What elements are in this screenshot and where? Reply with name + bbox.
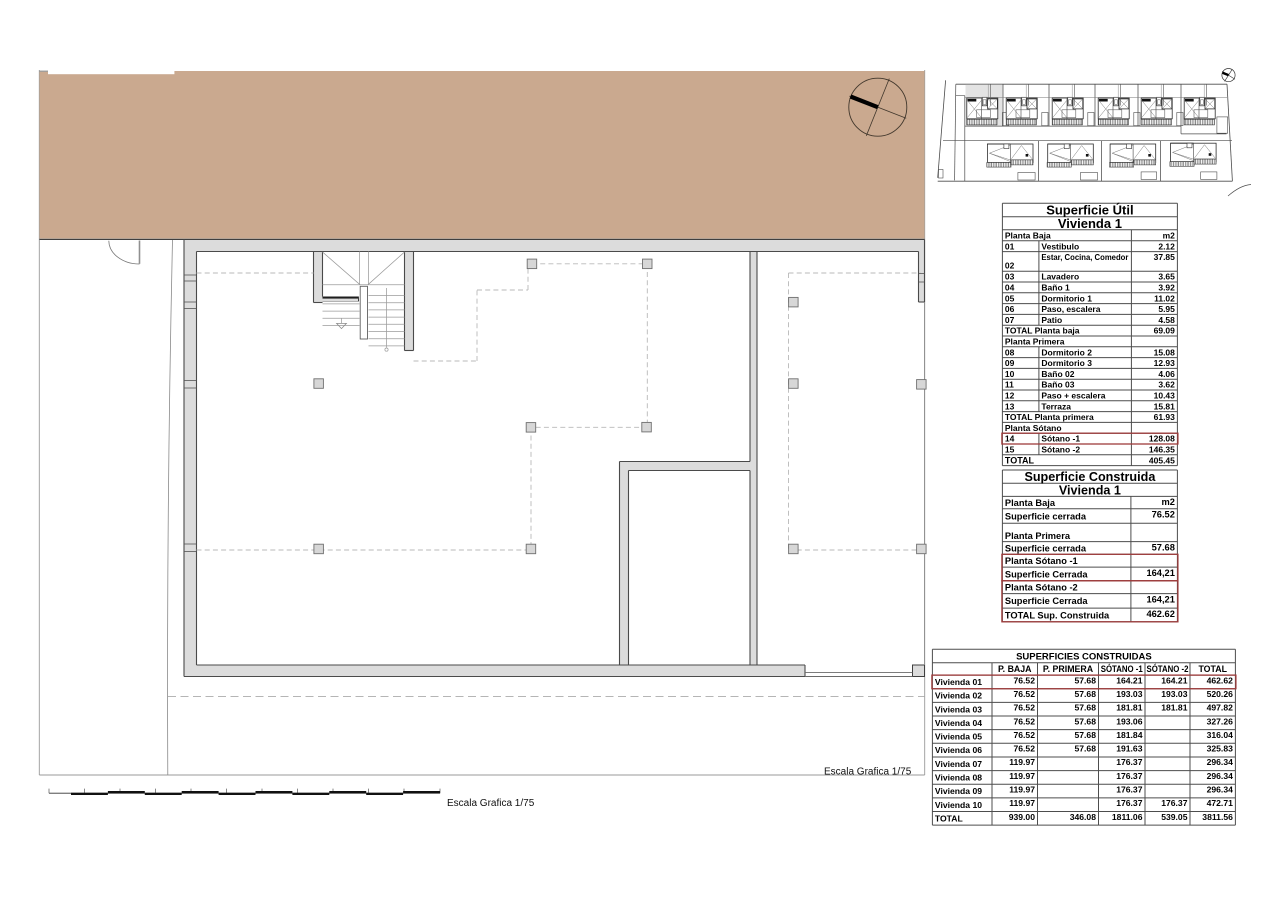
svg-text:13: 13 — [1005, 401, 1015, 411]
svg-text:15.08: 15.08 — [1154, 347, 1176, 357]
svg-text:193.03: 193.03 — [1116, 689, 1143, 699]
svg-text:Superficie cerrada: Superficie cerrada — [1005, 511, 1087, 521]
svg-text:Vivienda 1: Vivienda 1 — [1058, 216, 1122, 231]
svg-text:1811.06: 1811.06 — [1112, 812, 1143, 822]
svg-text:296.34: 296.34 — [1207, 757, 1234, 767]
svg-text:462.62: 462.62 — [1207, 675, 1234, 685]
svg-text:Vivienda 06: Vivienda 06 — [935, 745, 982, 755]
svg-text:Paso, escalera: Paso, escalera — [1041, 304, 1100, 314]
svg-text:Vivienda 09: Vivienda 09 — [935, 786, 982, 796]
svg-text:76.52: 76.52 — [1013, 730, 1035, 740]
svg-text:57.68: 57.68 — [1074, 689, 1096, 699]
svg-text:57.68: 57.68 — [1074, 716, 1096, 726]
svg-text:Baño 1: Baño 1 — [1041, 282, 1070, 292]
svg-text:57.68: 57.68 — [1074, 730, 1096, 740]
svg-text:02: 02 — [1005, 260, 1015, 270]
svg-text:76.52: 76.52 — [1013, 703, 1035, 713]
svg-text:76.52: 76.52 — [1013, 716, 1035, 726]
svg-text:Patio: Patio — [1041, 315, 1062, 325]
svg-text:Superficie Cerrada: Superficie Cerrada — [1005, 596, 1089, 606]
svg-text:4.58: 4.58 — [1158, 315, 1175, 325]
svg-text:497.82: 497.82 — [1207, 703, 1234, 713]
svg-text:472.71: 472.71 — [1207, 798, 1234, 808]
svg-text:76.52: 76.52 — [1152, 510, 1175, 520]
svg-text:10: 10 — [1005, 369, 1015, 379]
svg-text:09: 09 — [1005, 358, 1015, 368]
svg-text:15: 15 — [1005, 444, 1015, 454]
svg-text:176.37: 176.37 — [1116, 798, 1143, 808]
svg-text:Vivienda 05: Vivienda 05 — [935, 732, 982, 742]
svg-text:520.26: 520.26 — [1207, 689, 1234, 699]
svg-text:939.00: 939.00 — [1009, 812, 1036, 822]
svg-text:191.63: 191.63 — [1116, 744, 1143, 754]
svg-text:296.34: 296.34 — [1207, 784, 1234, 794]
svg-text:193.03: 193.03 — [1161, 689, 1188, 699]
svg-text:Planta Baja: Planta Baja — [1005, 498, 1056, 508]
svg-text:57.68: 57.68 — [1152, 542, 1175, 552]
svg-text:Dormitorio 1: Dormitorio 1 — [1041, 293, 1092, 303]
svg-text:TOTAL Planta primera: TOTAL Planta primera — [1005, 412, 1094, 422]
svg-text:5.95: 5.95 — [1158, 304, 1175, 314]
svg-text:181.84: 181.84 — [1116, 730, 1143, 740]
svg-text:Dormitorio 3: Dormitorio 3 — [1041, 358, 1092, 368]
svg-text:Vivienda 1: Vivienda 1 — [1059, 483, 1121, 497]
svg-text:SUPERFICIES CONSTRUIDAS: SUPERFICIES CONSTRUIDAS — [1016, 651, 1152, 662]
svg-text:Escala Grafica 1/75: Escala Grafica 1/75 — [824, 767, 912, 778]
svg-text:06: 06 — [1005, 304, 1015, 314]
svg-text:57.68: 57.68 — [1074, 675, 1096, 685]
svg-text:12: 12 — [1005, 390, 1015, 400]
svg-text:2.12: 2.12 — [1158, 241, 1175, 251]
svg-text:SÓTANO -1: SÓTANO -1 — [1101, 663, 1143, 674]
svg-text:176.37: 176.37 — [1116, 757, 1143, 767]
svg-text:76.52: 76.52 — [1013, 689, 1035, 699]
svg-text:Planta Sótano -1: Planta Sótano -1 — [1005, 556, 1078, 566]
svg-text:Vivienda 08: Vivienda 08 — [935, 773, 982, 783]
svg-text:Vivienda 02: Vivienda 02 — [935, 691, 982, 701]
svg-text:128.08: 128.08 — [1149, 434, 1175, 444]
svg-text:Sótano -1: Sótano -1 — [1041, 434, 1080, 444]
svg-text:176.37: 176.37 — [1161, 798, 1188, 808]
svg-text:TOTAL: TOTAL — [935, 813, 963, 823]
svg-text:164,21: 164,21 — [1146, 594, 1174, 604]
svg-text:3.92: 3.92 — [1158, 282, 1175, 292]
svg-text:Superficie cerrada: Superficie cerrada — [1005, 543, 1087, 553]
svg-text:Planta Primera: Planta Primera — [1005, 336, 1065, 346]
svg-text:346.08: 346.08 — [1070, 812, 1097, 822]
svg-text:Vivienda 04: Vivienda 04 — [935, 718, 982, 728]
svg-text:119.97: 119.97 — [1009, 771, 1035, 781]
svg-text:04: 04 — [1005, 282, 1015, 292]
svg-text:15.81: 15.81 — [1154, 401, 1176, 411]
svg-text:12.93: 12.93 — [1154, 358, 1176, 368]
svg-text:325.83: 325.83 — [1207, 744, 1234, 754]
svg-text:Baño 02: Baño 02 — [1041, 369, 1074, 379]
svg-text:193.06: 193.06 — [1116, 716, 1143, 726]
svg-text:4.06: 4.06 — [1158, 369, 1175, 379]
svg-text:Paso + escalera: Paso + escalera — [1041, 390, 1105, 400]
svg-text:SÓTANO -2: SÓTANO -2 — [1147, 663, 1189, 674]
svg-text:03: 03 — [1005, 272, 1015, 282]
svg-text:01: 01 — [1005, 241, 1015, 251]
svg-text:Planta Baja: Planta Baja — [1005, 230, 1051, 240]
svg-text:176.37: 176.37 — [1116, 771, 1143, 781]
svg-text:Sótano -2: Sótano -2 — [1041, 444, 1080, 454]
svg-text:181.81: 181.81 — [1161, 703, 1188, 713]
svg-text:Vivienda 03: Vivienda 03 — [935, 704, 982, 714]
svg-text:Lavadero: Lavadero — [1041, 272, 1079, 282]
svg-text:69.09: 69.09 — [1154, 326, 1176, 336]
svg-text:296.34: 296.34 — [1207, 771, 1234, 781]
svg-text:Vestibulo: Vestibulo — [1041, 241, 1079, 251]
svg-text:P. PRIMERA: P. PRIMERA — [1043, 664, 1094, 674]
svg-text:76.52: 76.52 — [1013, 675, 1035, 685]
svg-text:m2: m2 — [1163, 230, 1176, 240]
svg-text:TOTAL Sup. Construida: TOTAL Sup. Construida — [1005, 610, 1110, 620]
svg-text:Vivienda 07: Vivienda 07 — [935, 759, 982, 769]
svg-text:TOTAL Planta baja: TOTAL Planta baja — [1005, 326, 1080, 336]
svg-text:119.97: 119.97 — [1009, 784, 1035, 794]
svg-text:14: 14 — [1005, 434, 1015, 444]
svg-text:11.02: 11.02 — [1154, 293, 1175, 303]
svg-text:146.35: 146.35 — [1149, 444, 1175, 454]
svg-text:37.85: 37.85 — [1154, 252, 1176, 262]
svg-text:08: 08 — [1005, 347, 1015, 357]
svg-text:m2: m2 — [1161, 497, 1174, 507]
svg-text:405.45: 405.45 — [1149, 455, 1175, 465]
svg-text:76.52: 76.52 — [1013, 744, 1035, 754]
svg-text:539.05: 539.05 — [1161, 812, 1188, 822]
svg-text:TOTAL: TOTAL — [1005, 455, 1035, 465]
svg-text:61.93: 61.93 — [1154, 412, 1176, 422]
svg-text:10.43: 10.43 — [1154, 390, 1176, 400]
svg-text:Vivienda 01: Vivienda 01 — [935, 677, 982, 687]
svg-text:3.65: 3.65 — [1158, 272, 1175, 282]
svg-text:3.62: 3.62 — [1158, 380, 1175, 390]
svg-text:119.97: 119.97 — [1009, 798, 1035, 808]
svg-text:07: 07 — [1005, 315, 1015, 325]
svg-text:57.68: 57.68 — [1074, 744, 1096, 754]
svg-text:Estar, Cocina, Comedor: Estar, Cocina, Comedor — [1041, 252, 1129, 262]
svg-text:181.81: 181.81 — [1116, 703, 1143, 713]
svg-text:TOTAL: TOTAL — [1198, 664, 1227, 674]
svg-text:3811.56: 3811.56 — [1202, 812, 1233, 822]
svg-text:316.04: 316.04 — [1207, 730, 1234, 740]
svg-text:Planta Sótano: Planta Sótano — [1005, 423, 1062, 433]
svg-text:164.21: 164.21 — [1161, 675, 1188, 685]
svg-text:164.21: 164.21 — [1116, 675, 1143, 685]
svg-text:P. BAJA: P. BAJA — [998, 664, 1032, 674]
svg-text:57.68: 57.68 — [1074, 703, 1096, 713]
svg-text:Planta Primera: Planta Primera — [1005, 531, 1071, 541]
svg-text:05: 05 — [1005, 293, 1015, 303]
svg-text:462.62: 462.62 — [1146, 609, 1174, 619]
svg-text:Superficie Construida: Superficie Construida — [1024, 470, 1156, 484]
svg-text:164,21: 164,21 — [1146, 568, 1174, 578]
svg-text:327.26: 327.26 — [1207, 716, 1234, 726]
svg-text:Dormitorio 2: Dormitorio 2 — [1041, 347, 1092, 357]
svg-text:Baño 03: Baño 03 — [1041, 380, 1074, 390]
svg-text:Planta Sótano -2: Planta Sótano -2 — [1005, 583, 1078, 593]
svg-text:Escala Grafica 1/75: Escala Grafica 1/75 — [447, 798, 535, 809]
svg-text:Superficie Cerrada: Superficie Cerrada — [1005, 569, 1089, 579]
svg-text:176.37: 176.37 — [1116, 784, 1143, 794]
svg-text:119.97: 119.97 — [1009, 757, 1035, 767]
svg-text:11: 11 — [1005, 380, 1014, 390]
svg-text:Vivienda 10: Vivienda 10 — [935, 800, 982, 810]
svg-text:Terraza: Terraza — [1041, 401, 1071, 411]
